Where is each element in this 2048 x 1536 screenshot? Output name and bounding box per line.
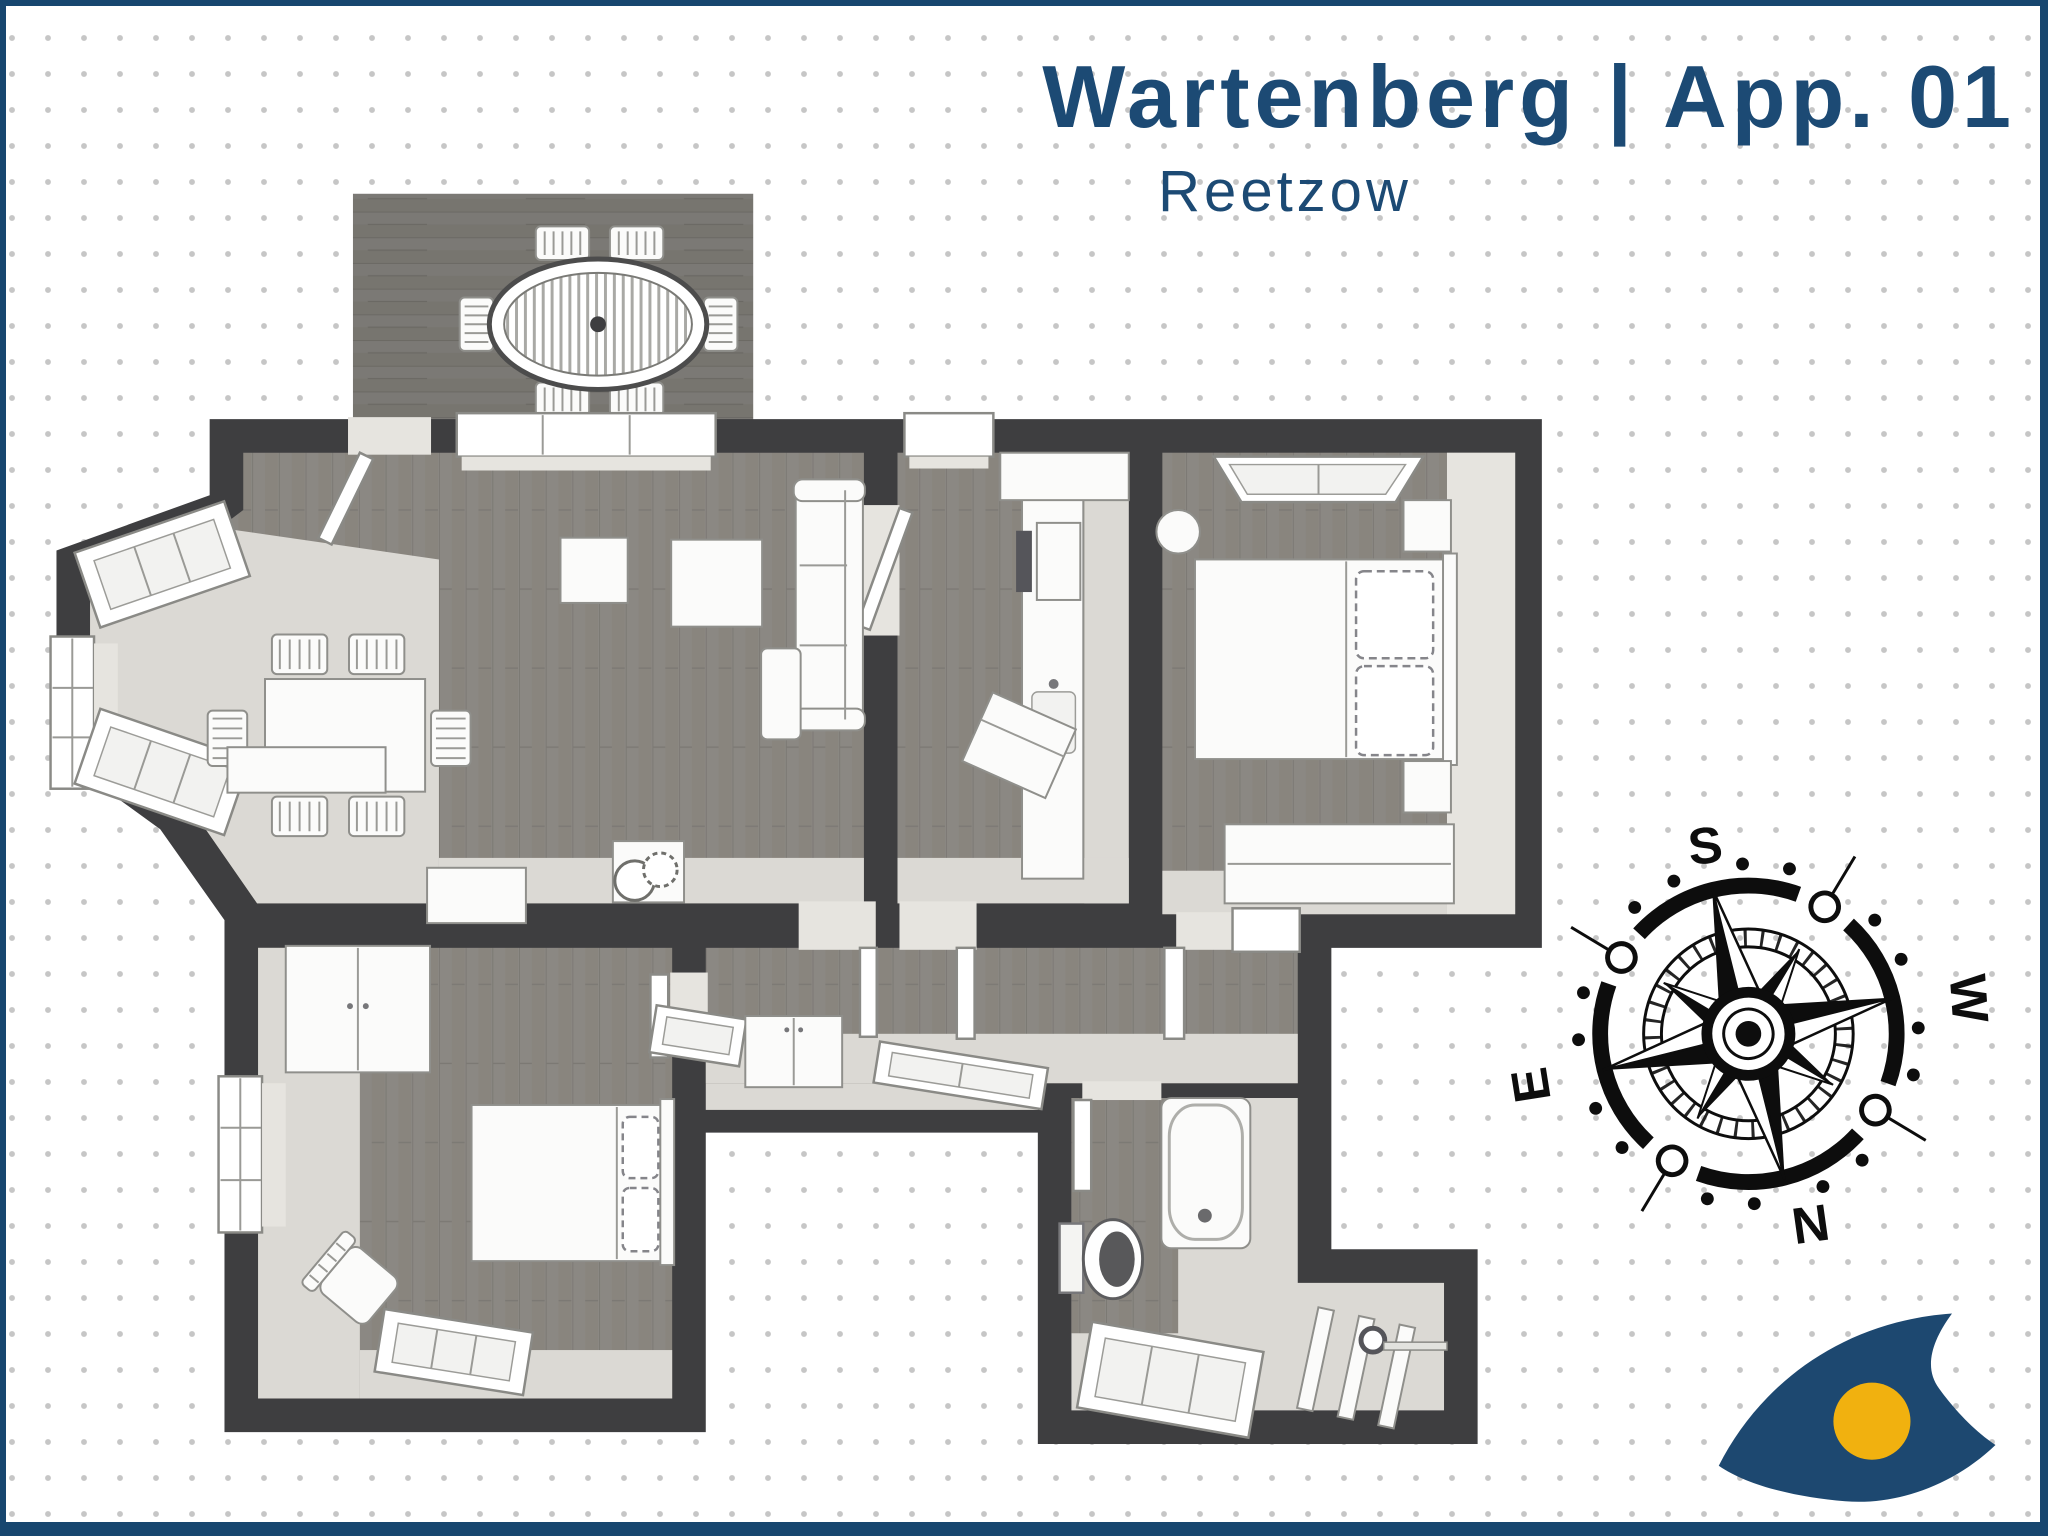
toilet xyxy=(1060,1220,1143,1299)
roof-window xyxy=(1214,457,1424,502)
tv-panel xyxy=(1037,523,1080,600)
ottoman xyxy=(560,538,627,603)
pillow xyxy=(1356,571,1433,658)
compass-label-west: W xyxy=(1939,972,2000,1025)
page-subtitle: Reetzow xyxy=(1158,158,1412,225)
sideboard xyxy=(227,747,385,792)
nightstand xyxy=(1404,500,1451,551)
compass-label-east: E xyxy=(1499,1064,1562,1107)
kitchen-floor-band xyxy=(1084,453,1128,904)
door-opening xyxy=(348,417,431,455)
compass-label-north: N xyxy=(1788,1193,1833,1256)
floorplan-page: S W E N Wartenberg | App. 01 Reetzow xyxy=(0,0,2048,1536)
hall-cabinet xyxy=(745,1016,842,1087)
compass-label-south: S xyxy=(1685,815,1725,876)
window xyxy=(219,1076,286,1232)
tv-icon xyxy=(1016,531,1032,592)
window xyxy=(904,413,993,468)
window xyxy=(1233,908,1300,951)
double-bed xyxy=(472,1099,675,1265)
door-opening xyxy=(1082,1081,1161,1100)
bathtub xyxy=(1161,1098,1250,1248)
pillow xyxy=(623,1188,659,1251)
coffee-table xyxy=(671,540,762,627)
terrace-chair xyxy=(610,226,663,260)
kitchen-floor-band xyxy=(898,858,1129,903)
logo-sun-icon xyxy=(1833,1383,1910,1460)
pillow xyxy=(623,1117,659,1178)
door-leaf xyxy=(1073,1100,1091,1191)
door-leaf xyxy=(1164,948,1184,1039)
window xyxy=(457,413,716,470)
wardrobe xyxy=(286,946,430,1073)
pillow xyxy=(1356,666,1433,755)
terrace-chair xyxy=(536,226,589,260)
door-leaf xyxy=(957,948,975,1039)
bench xyxy=(427,868,526,923)
dresser xyxy=(1225,824,1454,903)
terrace xyxy=(353,194,753,428)
double-bed xyxy=(1195,554,1457,765)
side-table xyxy=(613,841,684,902)
logo-mark-icon xyxy=(1719,1313,1996,1501)
terrace-table xyxy=(489,259,706,389)
headboard xyxy=(1443,554,1457,765)
page-title: Wartenberg | App. 01 xyxy=(1042,46,2016,148)
kitchen-wall-cabinet xyxy=(1000,453,1128,500)
door-leaf xyxy=(860,948,877,1037)
ceiling-lamp xyxy=(1156,510,1199,553)
door-opening xyxy=(899,901,976,949)
floorplan-graphic: S W E N xyxy=(6,6,2042,1524)
headboard xyxy=(660,1099,674,1265)
door-opening xyxy=(799,901,876,949)
nightstand xyxy=(1404,761,1451,812)
